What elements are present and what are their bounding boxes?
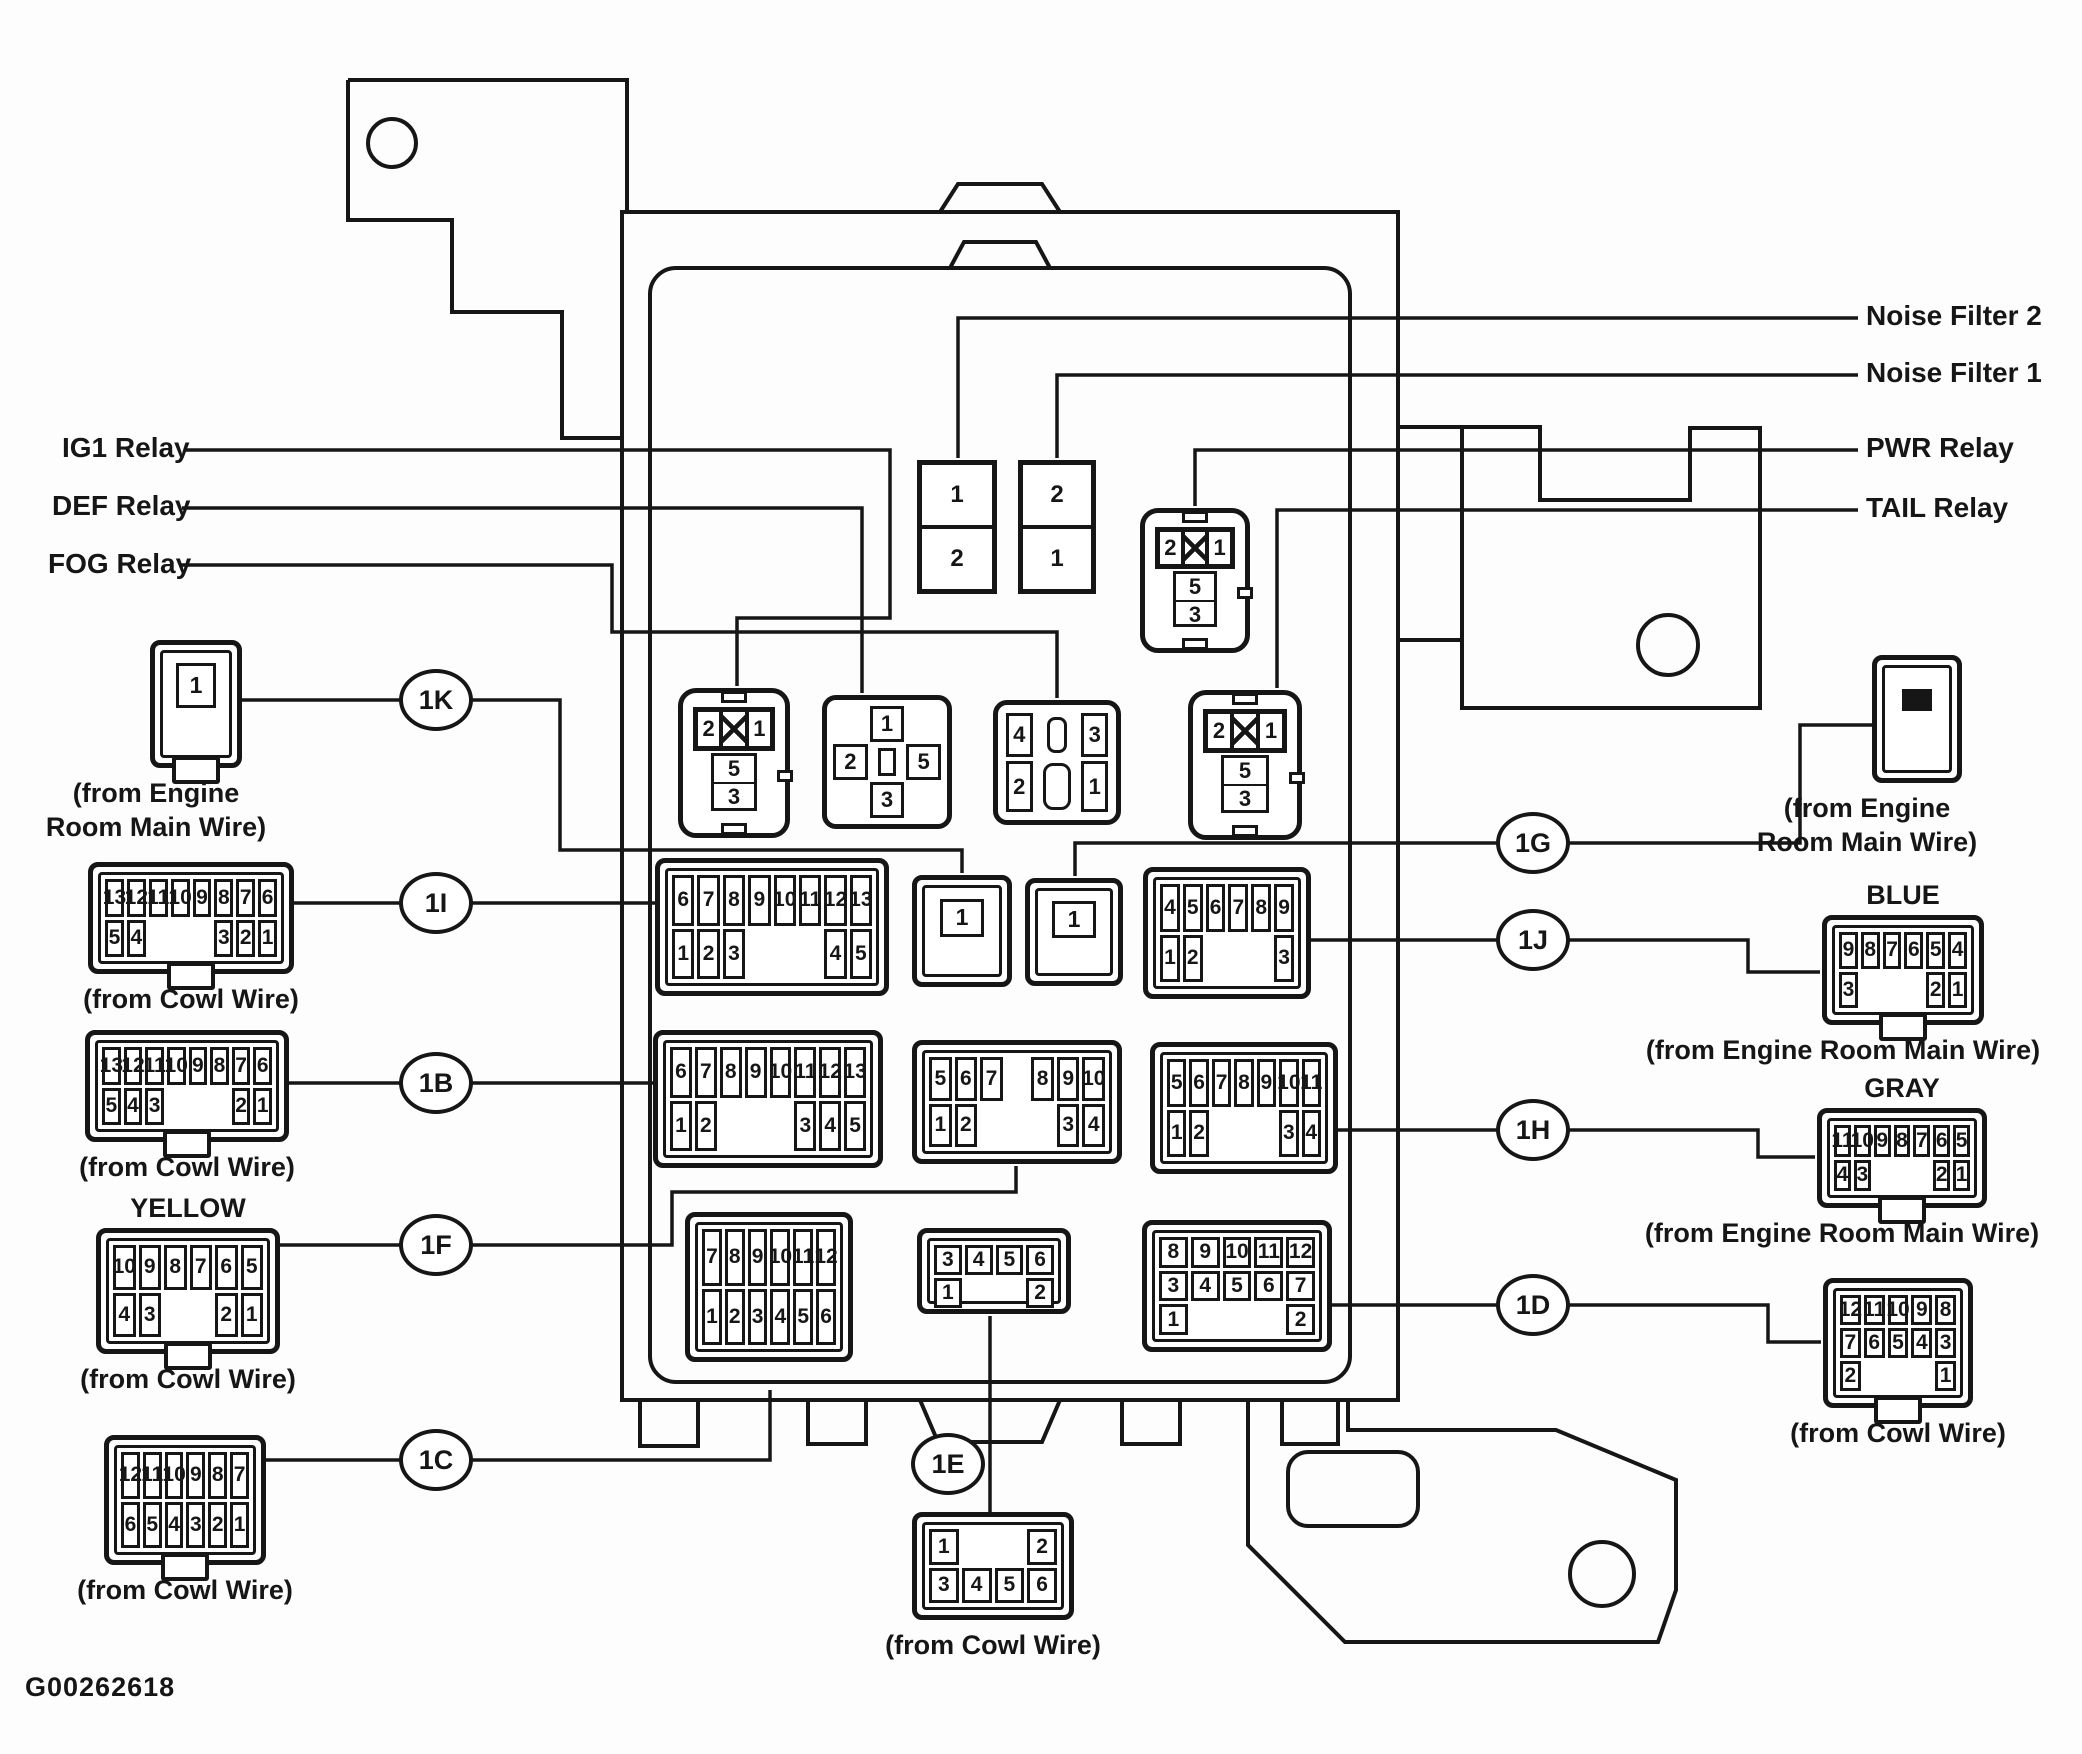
1b-external-pin-12: 12 — [124, 1047, 143, 1085]
1b-mate-pin-9: 9 — [745, 1047, 767, 1098]
1h-mate-pin-row: 567891011 — [1167, 1059, 1321, 1107]
gray-external-pin-4: 4 — [1834, 1160, 1851, 1192]
1d-mate-pin-8: 8 — [1159, 1237, 1188, 1268]
blue-external-pin-2: 2 — [1926, 972, 1945, 1009]
1j-mate-pin-4: 4 — [1160, 884, 1180, 932]
1f-external-pin-row: 4321 — [113, 1293, 263, 1338]
blue-external-pin-4: 4 — [1948, 932, 1967, 969]
1c-external-pin-row: 654321 — [121, 1502, 249, 1549]
1f-external-pin-7: 7 — [190, 1245, 213, 1290]
1c-external-pin-11: 11 — [143, 1452, 162, 1499]
connector-1g-external: (from EngineRoom Main Wire) — [1872, 655, 1962, 783]
tail-relay-socket-pin-3: 3 — [1224, 784, 1265, 812]
1f-mate-pin-5: 5 — [929, 1057, 952, 1101]
1d-external-pin-3: 3 — [1935, 1328, 1956, 1358]
1i-external-pin-3: 3 — [214, 920, 233, 958]
fog-relay-socket-pin-2: 2 — [1006, 761, 1033, 812]
1f-external-pin-5: 5 — [241, 1245, 264, 1290]
fog-relay-socket-pin-3: 3 — [1081, 713, 1108, 757]
1e-external-gap — [995, 1529, 1025, 1565]
1d-mate-pin-3: 3 — [1159, 1271, 1188, 1302]
pwr-relay-label: PWR Relay — [1866, 432, 2014, 464]
1e-external-pin-row: 3456 — [929, 1568, 1057, 1604]
1i-external-pin-7: 7 — [236, 879, 255, 917]
callout-1K: 1K — [399, 669, 473, 731]
1c-mate-pin-8: 8 — [725, 1229, 745, 1286]
1d-mate-pin-6: 6 — [1254, 1271, 1283, 1302]
1e-mate-gap — [996, 1278, 1024, 1308]
1j-mate-pin-3: 3 — [1274, 935, 1294, 983]
ig1-relay-socket-top-row: 21 — [693, 707, 775, 751]
1b-mate-gap — [745, 1101, 767, 1152]
1c-mate-pin-2: 2 — [725, 1289, 745, 1346]
1f-mate-pin-7: 7 — [980, 1057, 1003, 1101]
1i-external-cavity: 13121110987654321 — [98, 872, 284, 964]
1h-mate-pin-8: 8 — [1234, 1059, 1253, 1107]
1i-mate-pin-6: 6 — [672, 875, 694, 926]
1h-mate-pin-7: 7 — [1212, 1059, 1231, 1107]
gray-external-pin-1: 1 — [1953, 1160, 1970, 1192]
1i-external-pin-12: 12 — [127, 879, 146, 917]
connector-1e-mate: 345612 — [917, 1228, 1071, 1314]
1j-mate-cavity: 456789123 — [1153, 877, 1301, 989]
ig1-relay-socket-pin-1: 1 — [747, 710, 772, 748]
1f-mate-pin-10: 10 — [1082, 1057, 1105, 1101]
bracket-hole-top-left — [368, 119, 416, 167]
ig1-relay-socket-pin-2: 2 — [696, 710, 721, 748]
1i-mate-pin-7: 7 — [697, 875, 719, 926]
1b-mate-gap — [770, 1101, 792, 1152]
1b-external-pin-2: 2 — [232, 1088, 251, 1126]
1k-external-cavity: 1 — [160, 650, 232, 758]
1b-mate-pin-row: 678910111213 — [670, 1047, 866, 1098]
1b-external-pin-5: 5 — [102, 1088, 121, 1126]
1e-mate-pin-5: 5 — [996, 1245, 1024, 1275]
1e-external-cavity: 123456 — [922, 1522, 1064, 1610]
blue-external-pin-row: 987654 — [1839, 932, 1967, 969]
blue-external-gap — [1861, 972, 1880, 1009]
1f-external-pin-10: 10 — [113, 1245, 136, 1290]
def-relay-socket-center-key — [878, 748, 897, 776]
1i-mate-pin-5: 5 — [850, 929, 872, 980]
1d-external-cavity: 121110987654321 — [1833, 1288, 1963, 1398]
1c-external-pin-6: 6 — [121, 1502, 140, 1549]
fog-relay-socket-key-small — [1047, 717, 1068, 753]
1h-mate-pin-3: 3 — [1279, 1110, 1298, 1158]
1e-external-pin-1: 1 — [929, 1529, 959, 1565]
connector-1j-mate: 456789123 — [1143, 867, 1311, 999]
gray-external-gap — [1874, 1160, 1891, 1192]
gray-external-pin-9: 9 — [1874, 1125, 1891, 1157]
1j-mate-housing: 456789123 — [1143, 867, 1311, 999]
1i-mate-pin-row: 12345 — [672, 929, 872, 980]
1h-mate-pin-row: 1234 — [1167, 1110, 1321, 1158]
1b-external-pin-11: 11 — [145, 1047, 164, 1085]
1j-mate-gap — [1206, 935, 1226, 983]
1i-external-pin-2: 2 — [236, 920, 255, 958]
1i-mate-pin-12: 12 — [824, 875, 846, 926]
1d-external-pin-row: 12111098 — [1840, 1295, 1956, 1325]
blue-external-caption: (from Engine Room Main Wire) — [1646, 1033, 2040, 1067]
1k-external-pin-1: 1 — [176, 663, 216, 708]
gray-external-pin-row: 111098765 — [1834, 1125, 1970, 1157]
1d-external-pin-row: 76543 — [1840, 1328, 1956, 1358]
noise-filter-1-box-pin-1: 1 — [1023, 525, 1091, 589]
1i-external-pin-4: 4 — [127, 920, 146, 958]
1c-mate-pin-1: 1 — [702, 1289, 722, 1346]
tail-relay-socket-housing: 2153 — [1188, 690, 1302, 840]
1e-mate-pin-row: 3456 — [934, 1245, 1054, 1275]
1i-external-gap — [171, 920, 190, 958]
fog-relay-label: FOG Relay — [48, 548, 191, 580]
1d-external-gap — [1888, 1361, 1909, 1391]
pwr-relay-socket-pin-3: 3 — [1176, 600, 1215, 628]
gray-external-pin-3: 3 — [1854, 1160, 1871, 1192]
blue-external-gap — [1904, 972, 1923, 1009]
gray-external-caption: (from Engine Room Main Wire) — [1645, 1216, 2039, 1250]
1i-mate-pin-3: 3 — [723, 929, 745, 980]
connector-pwr-relay-socket: 2153 — [1140, 508, 1250, 653]
connector-fog-relay-socket: 4321 — [993, 700, 1121, 825]
1k-mate-pin-1: 1 — [940, 899, 984, 938]
noise-filter-2-box-pin-2: 2 — [922, 525, 992, 589]
noise-filter-1-label: Noise Filter 1 — [1866, 357, 2042, 389]
diagram-line-art — [0, 0, 2082, 1754]
1e-mate-pin-1: 1 — [934, 1278, 962, 1308]
1f-mate-pin-row: 5678910 — [929, 1057, 1105, 1101]
1h-mate-pin-5: 5 — [1167, 1059, 1186, 1107]
leader-noise-filter-2 — [958, 318, 1858, 458]
gray-external-color-label: GRAY — [1864, 1073, 1940, 1104]
fog-relay-socket-pin-1: 1 — [1081, 761, 1108, 812]
fog-relay-socket-key-large — [1043, 763, 1072, 810]
leader-1d — [1332, 1305, 1821, 1342]
1h-mate-gap — [1257, 1110, 1276, 1158]
blue-external-pin-1: 1 — [1948, 972, 1967, 1009]
noise-filter-2-box-pin-1: 1 — [922, 465, 992, 525]
1d-mate-gap — [1223, 1304, 1252, 1335]
1i-external-pin-6: 6 — [258, 879, 277, 917]
callout-1G: 1G — [1496, 812, 1570, 874]
1h-mate-pin-1: 1 — [1167, 1110, 1186, 1158]
bracket-slot — [1288, 1452, 1418, 1526]
1f-mate-pin-4: 4 — [1082, 1104, 1105, 1148]
1h-mate-pin-6: 6 — [1189, 1059, 1208, 1107]
pwr-relay-socket-pin-2: 2 — [1158, 530, 1183, 566]
1i-external-pin-5: 5 — [105, 920, 124, 958]
connector-1f-mate: 56789101234 — [912, 1040, 1122, 1164]
1c-external-pin-5: 5 — [143, 1502, 162, 1549]
1h-mate-pin-9: 9 — [1257, 1059, 1276, 1107]
connector-blue-external: BLUE987654321(from Engine Room Main Wire… — [1822, 915, 1984, 1025]
1i-mate-pin-row: 678910111213 — [672, 875, 872, 926]
1d-external-housing: 121110987654321 — [1823, 1278, 1973, 1408]
1e-external-pin-row: 12 — [929, 1529, 1057, 1565]
1b-external-gap — [167, 1088, 186, 1126]
mounting-bracket-right — [1398, 427, 1760, 708]
1b-external-pin-7: 7 — [232, 1047, 251, 1085]
1f-mate-pin-3: 3 — [1057, 1104, 1080, 1148]
1c-external-pin-9: 9 — [186, 1452, 205, 1499]
noise-filter-1-box-housing: 21 — [1018, 460, 1096, 594]
1i-external-gap — [193, 920, 212, 958]
blue-external-color-label: BLUE — [1866, 880, 1940, 911]
1d-mate-pin-5: 5 — [1223, 1271, 1252, 1302]
1c-external-pin-8: 8 — [208, 1452, 227, 1499]
connector-1i-mate: 67891011121312345 — [655, 858, 889, 996]
blue-external-pin-8: 8 — [1861, 932, 1880, 969]
1e-external-pin-5: 5 — [995, 1568, 1025, 1604]
connector-ig1-relay-socket: 2153 — [678, 688, 790, 838]
pwr-relay-socket-top-row: 21 — [1155, 527, 1235, 569]
1b-mate-pin-13: 13 — [844, 1047, 866, 1098]
fog-relay-socket-housing: 4321 — [993, 700, 1121, 825]
gray-external-pin-7: 7 — [1913, 1125, 1930, 1157]
1f-external-caption: (from Cowl Wire) — [80, 1362, 296, 1396]
connector-1f-external: YELLOW10987654321(from Cowl Wire) — [96, 1228, 280, 1354]
1b-external-pin-row: 54321 — [102, 1088, 272, 1126]
1f-external-cavity: 10987654321 — [106, 1238, 270, 1344]
connector-1h-mate: 5678910111234 — [1150, 1042, 1338, 1174]
tail-relay-socket-pin-2: 2 — [1206, 712, 1232, 750]
connector-def-relay-socket: 1253 — [822, 695, 952, 829]
noise-filter-1-box-pin-2: 2 — [1023, 465, 1091, 525]
gray-external-pin-2: 2 — [1933, 1160, 1950, 1192]
def-relay-socket-pin-1: 1 — [870, 706, 905, 742]
1i-external-pin-10: 10 — [171, 879, 190, 917]
figure-id: G00262618 — [25, 1672, 175, 1703]
1i-mate-pin-11: 11 — [799, 875, 821, 926]
1b-mate-pin-5: 5 — [844, 1101, 866, 1152]
1h-mate-housing: 5678910111234 — [1150, 1042, 1338, 1174]
1g-external-housing — [1872, 655, 1962, 783]
1b-mate-pin-7: 7 — [695, 1047, 717, 1098]
1c-external-housing: 121110987654321 — [104, 1435, 266, 1565]
1c-mate-pin-4: 4 — [770, 1289, 790, 1346]
1d-mate-pin-9: 9 — [1191, 1237, 1220, 1268]
pwr-relay-socket-pin-1: 1 — [1207, 530, 1232, 566]
1j-mate-pin-row: 123 — [1160, 935, 1294, 983]
callout-1D: 1D — [1496, 1274, 1570, 1336]
1c-mate-pin-6: 6 — [816, 1289, 836, 1346]
connector-1b-mate: 67891011121312345 — [653, 1030, 883, 1168]
1c-external-pin-1: 1 — [230, 1502, 249, 1549]
1h-mate-pin-10: 10 — [1279, 1059, 1298, 1107]
fog-relay-socket-pin-4: 4 — [1006, 713, 1033, 757]
1d-external-pin-5: 5 — [1888, 1328, 1909, 1358]
gray-external-pin-row: 4321 — [1834, 1160, 1970, 1192]
1f-mate-pin-2: 2 — [955, 1104, 978, 1148]
1b-mate-pin-10: 10 — [770, 1047, 792, 1098]
1h-mate-gap — [1234, 1110, 1253, 1158]
1f-external-pin-2: 2 — [215, 1293, 238, 1338]
gray-external-pin-5: 5 — [1953, 1125, 1970, 1157]
callout-1F: 1F — [399, 1214, 473, 1276]
pwr-relay-socket-tab-top — [1182, 511, 1208, 523]
1d-mate-pin-4: 4 — [1191, 1271, 1220, 1302]
1j-mate-pin-6: 6 — [1206, 884, 1226, 932]
def-relay-socket-pin-2: 2 — [833, 744, 868, 780]
bracket-hole-bottom-right — [1570, 1542, 1634, 1606]
1d-mate-pin-7: 7 — [1286, 1271, 1315, 1302]
blue-external-pin-7: 7 — [1883, 932, 1902, 969]
1e-mate-pin-4: 4 — [965, 1245, 993, 1275]
1c-external-pin-2: 2 — [208, 1502, 227, 1549]
1h-mate-pin-2: 2 — [1189, 1110, 1208, 1158]
1d-external-pin-1: 1 — [1935, 1361, 1956, 1391]
1b-mate-pin-2: 2 — [695, 1101, 717, 1152]
gray-external-pin-11: 11 — [1834, 1125, 1851, 1157]
mounting-bracket-top-left — [348, 80, 627, 438]
1i-external-pin-1: 1 — [258, 920, 277, 958]
ig1-relay-socket-pin-3: 3 — [714, 782, 754, 810]
pwr-relay-socket-housing: 2153 — [1140, 508, 1250, 653]
1e-external-caption: (from Cowl Wire) — [885, 1628, 1101, 1662]
1i-external-pin-row: 131211109876 — [105, 879, 277, 917]
1d-external-pin-6: 6 — [1864, 1328, 1885, 1358]
1i-external-housing: 13121110987654321 — [88, 862, 294, 974]
leader-def-relay — [182, 508, 862, 693]
fusebox-wiring-diagram: G00262618 IG1 RelayDEF RelayFOG RelayNoi… — [0, 0, 2082, 1754]
1b-external-gap — [210, 1088, 229, 1126]
1g-mate-housing: 1 — [1025, 878, 1123, 986]
connector-1e-external: 123456(from Cowl Wire) — [912, 1512, 1074, 1620]
leader-ig1-relay — [185, 450, 890, 686]
1d-mate-pin-row: 89101112 — [1159, 1237, 1315, 1268]
1f-external-pin-9: 9 — [139, 1245, 162, 1290]
blue-external-housing: 987654321 — [1822, 915, 1984, 1025]
1c-external-pin-3: 3 — [186, 1502, 205, 1549]
1e-mate-cavity: 345612 — [927, 1238, 1061, 1304]
1d-mate-cavity: 891011123456712 — [1152, 1230, 1322, 1342]
ig1-relay-label: IG1 Relay — [62, 432, 190, 464]
1f-mate-cavity: 56789101234 — [922, 1050, 1112, 1154]
1b-mate-pin-6: 6 — [670, 1047, 692, 1098]
callout-1E: 1E — [911, 1433, 985, 1495]
1g-external-caption-line: Room Main Wire) — [1757, 825, 1977, 859]
1b-external-pin-10: 10 — [167, 1047, 186, 1085]
1d-external-pin-12: 12 — [1840, 1295, 1861, 1325]
connector-1c-external: 121110987654321(from Cowl Wire) — [104, 1435, 266, 1565]
1j-mate-pin-7: 7 — [1228, 884, 1248, 932]
1i-external-pin-13: 13 — [105, 879, 124, 917]
tail-relay-socket-keyway-cross — [1232, 712, 1258, 750]
1d-mate-gap — [1254, 1304, 1283, 1335]
1f-mate-housing: 56789101234 — [912, 1040, 1122, 1164]
1b-mate-pin-1: 1 — [670, 1101, 692, 1152]
tail-relay-socket-top-row: 21 — [1203, 709, 1287, 753]
connector-gray-external: GRAY1110987654321(from Engine Room Main … — [1817, 1108, 1987, 1208]
1i-mate-pin-4: 4 — [824, 929, 846, 980]
mounting-bracket-bottom-right — [1248, 1400, 1676, 1642]
1d-mate-pin-11: 11 — [1254, 1237, 1283, 1268]
tail-relay-socket-pin-5: 5 — [1224, 758, 1265, 784]
1d-external-pin-row: 21 — [1840, 1361, 1956, 1391]
tail-relay-socket-stack: 53 — [1221, 755, 1268, 813]
1b-external-pin-6: 6 — [253, 1047, 272, 1085]
1b-external-pin-9: 9 — [189, 1047, 208, 1085]
1i-mate-housing: 67891011121312345 — [655, 858, 889, 996]
1g-external-caption-line: (from Engine — [1757, 791, 1977, 825]
1f-external-pin-1: 1 — [241, 1293, 264, 1338]
1b-external-pin-4: 4 — [124, 1088, 143, 1126]
1i-external-gap — [149, 920, 168, 958]
1c-mate-pin-3: 3 — [748, 1289, 768, 1346]
1i-mate-gap — [748, 929, 770, 980]
1b-external-cavity: 13121110987654321 — [95, 1040, 279, 1132]
1c-mate-cavity: 789101112123456 — [695, 1222, 843, 1352]
1e-mate-pin-3: 3 — [934, 1245, 962, 1275]
blue-external-cavity: 987654321 — [1832, 925, 1974, 1015]
connector-1i-external: 13121110987654321(from Cowl Wire) — [88, 862, 294, 974]
callout-1B: 1B — [399, 1052, 473, 1114]
1c-external-cavity: 121110987654321 — [114, 1445, 256, 1555]
gray-external-housing: 1110987654321 — [1817, 1108, 1987, 1208]
1e-external-pin-4: 4 — [962, 1568, 992, 1604]
1g-external-cavity — [1882, 665, 1952, 773]
connector-1d-external: 121110987654321(from Cowl Wire) — [1823, 1278, 1973, 1408]
def-relay-label: DEF Relay — [52, 490, 191, 522]
callout-1I: 1I — [399, 872, 473, 934]
1d-external-pin-4: 4 — [1911, 1328, 1932, 1358]
1f-external-pin-row: 1098765 — [113, 1245, 263, 1290]
1c-external-pin-12: 12 — [121, 1452, 140, 1499]
ig1-relay-socket-pin-5: 5 — [714, 756, 754, 782]
1b-external-pin-8: 8 — [210, 1047, 229, 1085]
1j-mate-gap — [1251, 935, 1271, 983]
callout-1J: 1J — [1496, 909, 1570, 971]
1j-mate-gap — [1228, 935, 1248, 983]
gray-external-cavity: 1110987654321 — [1827, 1118, 1977, 1198]
ig1-relay-socket-tab-top — [721, 691, 747, 703]
1f-external-caption-line: (from Cowl Wire) — [80, 1362, 296, 1396]
1i-external-caption-line: (from Cowl Wire) — [83, 982, 299, 1016]
1f-mate-pin-row: 1234 — [929, 1104, 1105, 1148]
1i-external-pin-8: 8 — [214, 879, 233, 917]
1h-mate-cavity: 5678910111234 — [1160, 1052, 1328, 1164]
1c-mate-pin-12: 12 — [816, 1229, 836, 1286]
connector-1g-mate: 1 — [1025, 878, 1123, 986]
connector-1d-mate: 891011123456712 — [1142, 1220, 1332, 1352]
tail-relay-socket-tab-top — [1232, 693, 1258, 705]
1b-mate-housing: 67891011121312345 — [653, 1030, 883, 1168]
1i-external-pin-11: 11 — [149, 879, 168, 917]
1d-external-pin-8: 8 — [1935, 1295, 1956, 1325]
1b-external-pin-1: 1 — [253, 1088, 272, 1126]
1g-external-caption: (from EngineRoom Main Wire) — [1757, 791, 1977, 859]
1g-mate-pin-1: 1 — [1052, 901, 1095, 938]
1b-mate-pin-12: 12 — [819, 1047, 841, 1098]
1f-mate-gap — [1006, 1057, 1029, 1101]
noise-filter-2-box-housing: 12 — [917, 460, 997, 594]
1d-external-pin-9: 9 — [1911, 1295, 1932, 1325]
pwr-relay-socket-keyway-cross — [1183, 530, 1208, 566]
1d-mate-pin-row: 34567 — [1159, 1271, 1315, 1302]
1f-external-color-label: YELLOW — [130, 1193, 246, 1224]
1j-mate-pin-5: 5 — [1183, 884, 1203, 932]
1c-mate-pin-5: 5 — [793, 1289, 813, 1346]
leader-noise-filter-1 — [1057, 375, 1858, 458]
1c-mate-pin-10: 10 — [770, 1229, 790, 1286]
1k-external-caption-line: (from Engine — [46, 776, 266, 810]
connector-1k-external: 1(from EngineRoom Main Wire) — [150, 640, 242, 768]
1h-mate-pin-4: 4 — [1302, 1110, 1321, 1158]
1c-external-pin-4: 4 — [165, 1502, 184, 1549]
1d-mate-pin-row: 12 — [1159, 1304, 1315, 1335]
1d-mate-pin-10: 10 — [1223, 1237, 1252, 1268]
1f-mate-gap — [980, 1104, 1003, 1148]
ig1-relay-socket-stack: 53 — [711, 753, 757, 811]
